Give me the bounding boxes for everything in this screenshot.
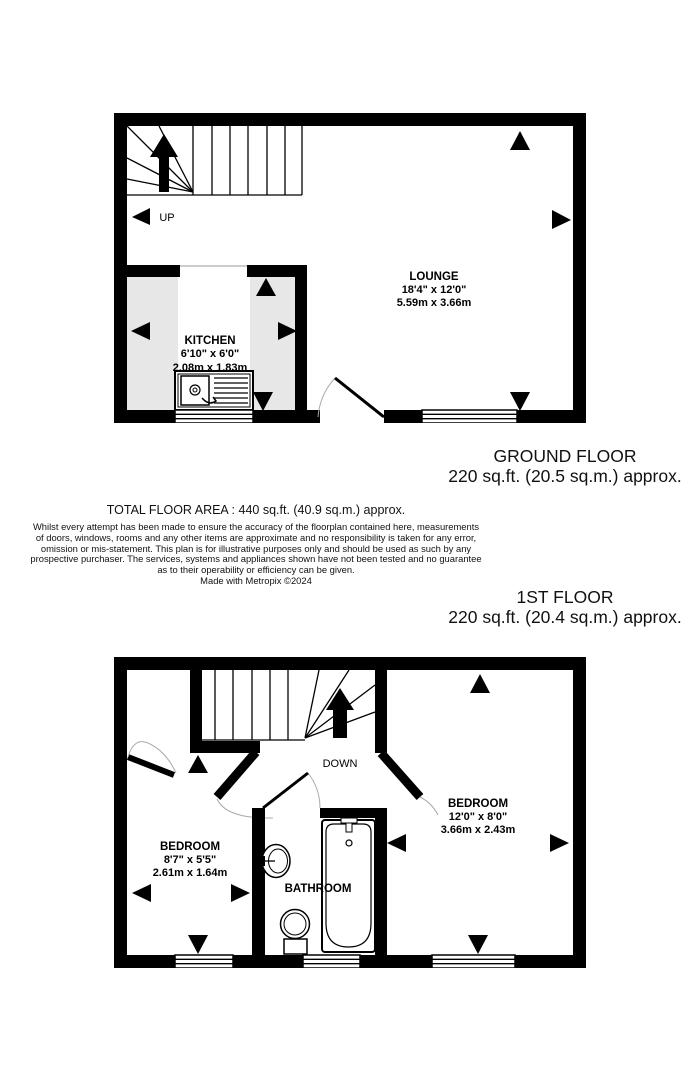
kitchen-sink-unit [175, 371, 253, 410]
window [175, 410, 253, 423]
window [175, 955, 233, 968]
kitchen-right-wall [295, 265, 307, 410]
kitchen-name: KITCHEN [184, 335, 235, 347]
bedroom-right-dim-imperial: 12'0" x 8'0" [449, 811, 507, 823]
window [303, 955, 360, 968]
bathroom-right-wall [375, 808, 387, 955]
toilet [281, 910, 310, 955]
lounge-name: LOUNGE [409, 271, 459, 283]
bedroom-left-dim-metric: 2.61m x 1.64m [153, 867, 228, 879]
total-floor-area: TOTAL FLOOR AREA : 440 sq.ft. (40.9 sq.m… [6, 503, 506, 517]
down-label: DOWN [323, 758, 358, 770]
credit-line: Made with Metropix ©2024 [6, 576, 506, 587]
kitchen-room: KITCHEN 6'10" x 6'0" 2.08m x 1.83m [127, 265, 307, 411]
floorplan-page: UP [0, 0, 700, 1083]
bedroom-left-dim-imperial: 8'7" x 5'5" [164, 854, 216, 866]
lounge-dim-imperial: 18'4" x 12'0" [402, 284, 467, 296]
lounge-dim-metric: 5.59m x 3.66m [397, 297, 472, 309]
bathroom-left-wall [252, 808, 265, 955]
summary-block: TOTAL FLOOR AREA : 440 sq.ft. (40.9 sq.m… [6, 503, 506, 587]
kitchen-label-box [178, 277, 250, 375]
bathroom-name: BATHROOM [285, 883, 352, 895]
ground-floor-title: GROUND FLOOR [415, 447, 700, 467]
up-label: UP [159, 212, 174, 224]
ground-floor-plan: UP [114, 113, 586, 423]
first-floor-caption: 1ST FLOOR 220 sq.ft. (20.4 sq.m.) approx… [415, 588, 700, 627]
first-floor-plan: DOWN [114, 657, 586, 968]
first-floor-title: 1ST FLOOR [415, 588, 700, 608]
ground-floor-area-text: 220 sq.ft. (20.5 sq.m.) approx. [415, 467, 700, 487]
sink [261, 845, 290, 878]
first-floor-area-text: 220 sq.ft. (20.4 sq.m.) approx. [415, 608, 700, 628]
bedroom-left-name: BEDROOM [160, 841, 220, 853]
bedroom-right-name: BEDROOM [448, 798, 508, 810]
ground-floor-caption: GROUND FLOOR 220 sq.ft. (20.5 sq.m.) app… [415, 447, 700, 486]
kitchen-dim-imperial: 6'10" x 6'0" [181, 348, 239, 360]
window [422, 410, 517, 423]
disclaimer-line: of doors, windows, rooms and any other i… [6, 533, 506, 544]
bedroom-right-dim-metric: 3.66m x 2.43m [441, 824, 516, 836]
kitchen-dim-metric: 2.08m x 1.83m [173, 362, 248, 374]
window [432, 955, 515, 968]
